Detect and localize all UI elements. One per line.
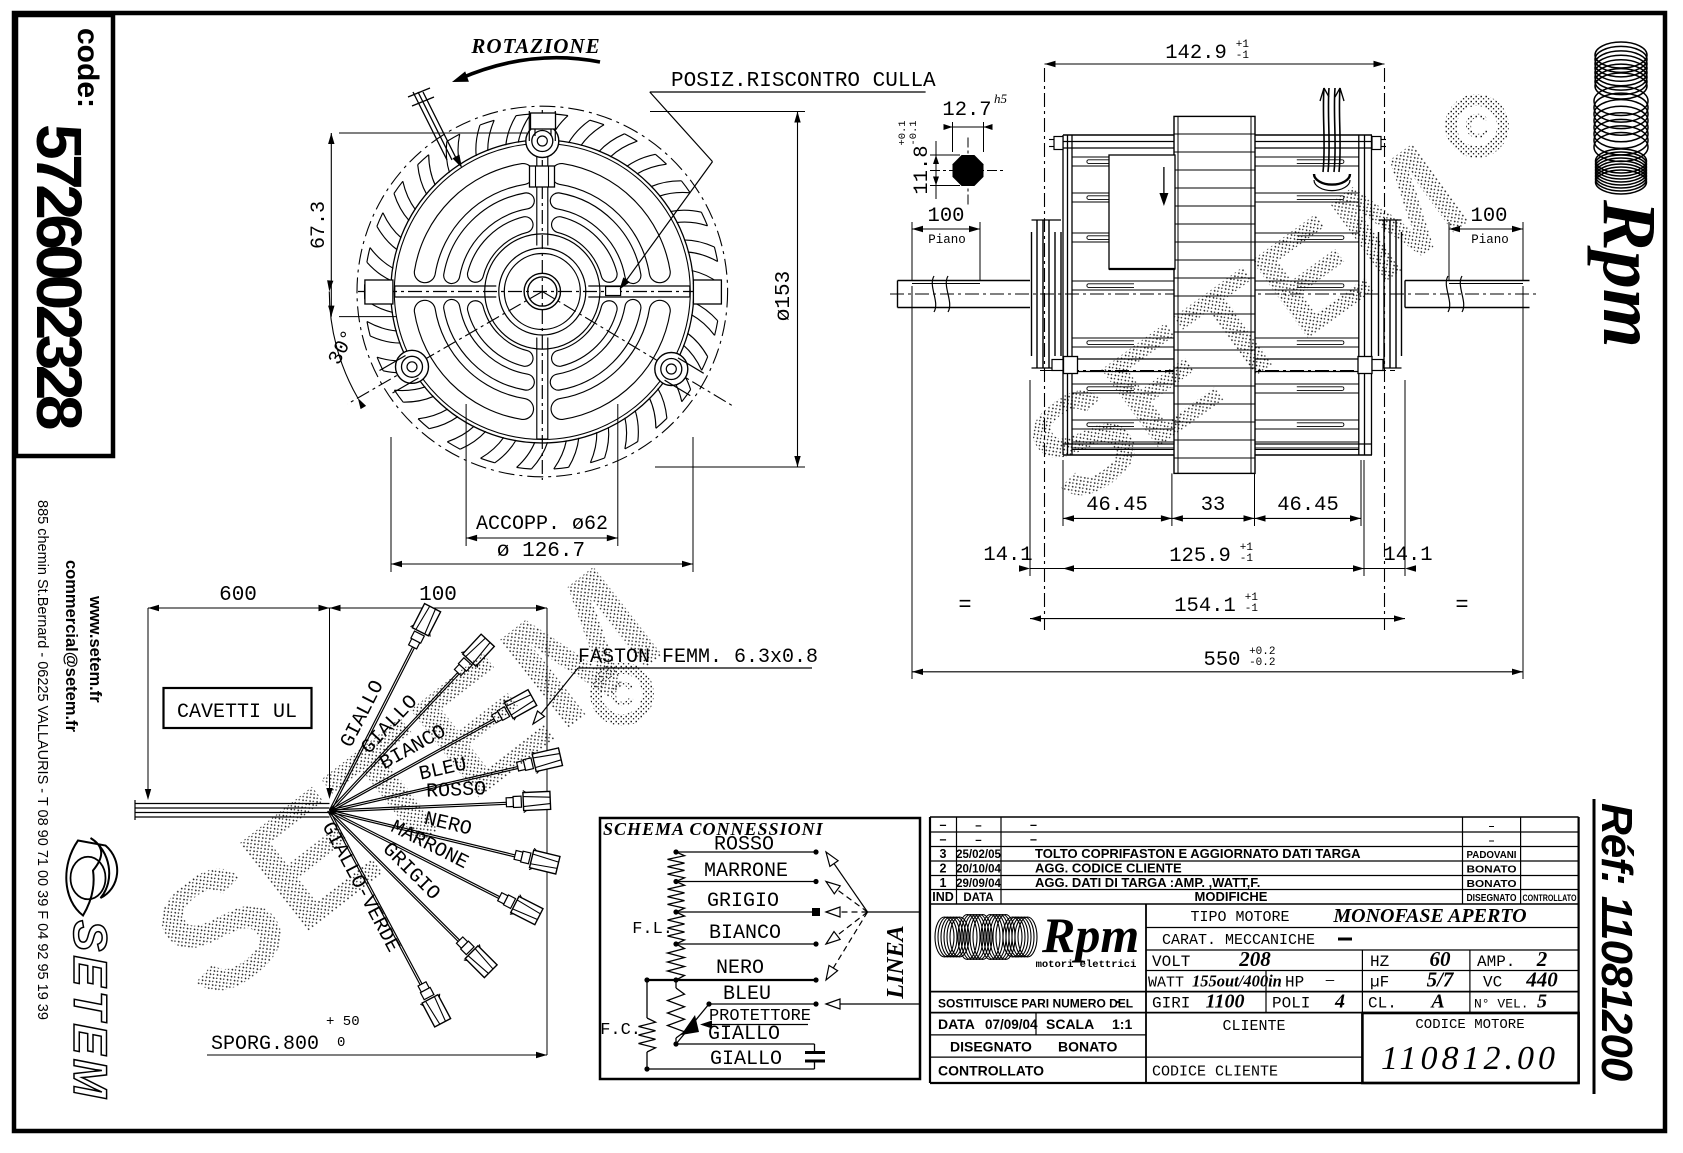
- svg-text:DATA: DATA: [938, 1016, 975, 1032]
- svg-text:POLI: POLI: [1272, 995, 1310, 1013]
- svg-text:142.9: 142.9: [1165, 42, 1227, 65]
- svg-text:GIRI: GIRI: [1152, 995, 1190, 1013]
- svg-text:-1: -1: [1236, 50, 1250, 62]
- svg-text:POSIZ.RISCONTRO CULLA: POSIZ.RISCONTRO CULLA: [671, 70, 936, 93]
- svg-text:WATT: WATT: [1148, 975, 1184, 992]
- svg-text:TOLTO COPRIFASTON E AGGIORNATO: TOLTO COPRIFASTON E AGGIORNATO DATI TARG…: [1035, 846, 1361, 861]
- svg-text:3: 3: [940, 847, 947, 861]
- svg-text:VC: VC: [1483, 974, 1502, 992]
- svg-text:code:: code:: [71, 28, 104, 108]
- svg-text:Piano: Piano: [928, 233, 966, 247]
- svg-text:–: –: [1030, 818, 1037, 832]
- svg-text:110812.00: 110812.00: [1381, 1040, 1559, 1077]
- svg-text:C: C: [610, 676, 634, 714]
- svg-text:-1: -1: [1245, 603, 1259, 615]
- svg-text:AMP.: AMP.: [1477, 953, 1515, 971]
- svg-text:-0.1: -0.1: [908, 120, 920, 145]
- svg-text:CODICE CLIENTE: CODICE CLIENTE: [1152, 1064, 1278, 1081]
- svg-text:HZ: HZ: [1370, 953, 1390, 971]
- svg-text:46.45: 46.45: [1277, 494, 1339, 517]
- svg-text:440: 440: [1525, 968, 1558, 992]
- svg-text:CONTROLLATO: CONTROLLATO: [938, 1063, 1044, 1079]
- svg-text:www.setem.fr: www.setem.fr: [86, 595, 104, 703]
- svg-text:Réf: 11081200: Réf: 11081200: [1592, 803, 1641, 1082]
- svg-text:CAVETTI UL: CAVETTI UL: [177, 701, 297, 724]
- svg-text:–: –: [940, 818, 947, 832]
- svg-text:GIALLO: GIALLO: [710, 1048, 782, 1071]
- svg-text:h5: h5: [994, 91, 1008, 106]
- svg-text:-: -: [1115, 993, 1120, 1010]
- svg-text:ACCOPP. ø62: ACCOPP. ø62: [476, 513, 608, 536]
- svg-text:Rpm: Rpm: [1041, 907, 1139, 963]
- svg-text:-1: -1: [1240, 553, 1254, 565]
- svg-text:14.1: 14.1: [1383, 544, 1432, 567]
- svg-text:1:1: 1:1: [1112, 1016, 1132, 1032]
- svg-text:Rpm: Rpm: [1587, 199, 1671, 348]
- svg-text:–: –: [975, 820, 982, 832]
- svg-text:BONATO: BONATO: [1058, 1039, 1117, 1055]
- svg-text:CLIENTE: CLIENTE: [1222, 1018, 1285, 1035]
- svg-text:GIALLO: GIALLO: [708, 1023, 780, 1046]
- svg-text:33: 33: [1201, 494, 1226, 517]
- svg-text:BONATO: BONATO: [1467, 865, 1517, 876]
- svg-text:5726002328: 5726002328: [23, 124, 95, 429]
- svg-text:DATA: DATA: [963, 892, 993, 904]
- svg-text:–: –: [1489, 836, 1495, 847]
- svg-text:-0.2: -0.2: [1249, 657, 1275, 669]
- svg-text:14.1: 14.1: [983, 544, 1032, 567]
- svg-text:550: 550: [1204, 649, 1241, 672]
- svg-text:µF: µF: [1370, 974, 1389, 992]
- svg-text:20/10/04: 20/10/04: [956, 864, 1001, 876]
- svg-text:A: A: [1429, 991, 1444, 1013]
- svg-text:AGG. CODICE CLIENTE: AGG. CODICE CLIENTE: [1035, 861, 1182, 876]
- svg-text:F.L.: F.L.: [632, 920, 673, 939]
- svg-text:DISEGNATO: DISEGNATO: [1467, 893, 1517, 904]
- svg-text:TIPO MOTORE: TIPO MOTORE: [1190, 909, 1289, 926]
- svg-text:600: 600: [219, 584, 257, 607]
- svg-text:ROSSO: ROSSO: [714, 834, 774, 857]
- svg-text:SETEM: SETEM: [64, 920, 117, 1102]
- svg-text:885 chemin St.Bernard - 0622: 885 chemin St.Bernard - 06225 VALLAURIS …: [34, 500, 50, 1020]
- svg-text:154.1: 154.1: [1174, 595, 1236, 618]
- svg-text:BONATO: BONATO: [1467, 879, 1517, 890]
- svg-text:PADOVANI: PADOVANI: [1467, 850, 1517, 861]
- svg-text:5: 5: [1537, 991, 1547, 1013]
- svg-text:100: 100: [928, 205, 965, 228]
- svg-text:VOLT: VOLT: [1152, 953, 1190, 971]
- svg-text:—: —: [1325, 973, 1335, 989]
- svg-text:NERO: NERO: [716, 957, 764, 980]
- svg-text:1: 1: [940, 876, 947, 890]
- svg-text:+ 50: + 50: [326, 1014, 360, 1030]
- svg-text:25/02/05: 25/02/05: [956, 849, 1001, 861]
- svg-text:commercial@setem.fr: commercial@setem.fr: [62, 560, 80, 733]
- svg-text:SPORG.800: SPORG.800: [211, 1033, 319, 1056]
- svg-text:SCALA: SCALA: [1046, 1016, 1094, 1032]
- svg-text:=: =: [958, 593, 971, 618]
- svg-text:CODICE MOTORE: CODICE MOTORE: [1415, 1017, 1524, 1033]
- svg-text:4: 4: [1334, 991, 1345, 1013]
- svg-text:AGG. DATI DI TARGA :AMP. ,WATT: AGG. DATI DI TARGA :AMP. ,WATT,F.: [1035, 875, 1260, 890]
- svg-text:N° VEL.: N° VEL.: [1474, 997, 1529, 1012]
- svg-text:208: 208: [1238, 947, 1271, 971]
- svg-text:5/7: 5/7: [1427, 968, 1455, 992]
- svg-text:MARRONE: MARRONE: [704, 860, 788, 883]
- svg-text:MODIFICHE: MODIFICHE: [1195, 889, 1268, 904]
- svg-text:0: 0: [337, 1035, 345, 1051]
- svg-text:HP: HP: [1285, 974, 1304, 992]
- svg-text:ROTAZIONE: ROTAZIONE: [470, 34, 600, 58]
- svg-text:=: =: [1455, 593, 1468, 618]
- svg-text:SOSTITUISCE PARI NUMERO DEL: SOSTITUISCE PARI NUMERO DEL: [938, 997, 1133, 1011]
- svg-text:CL.: CL.: [1368, 995, 1397, 1013]
- svg-text:07/09/04: 07/09/04: [985, 1017, 1038, 1032]
- svg-text:155out/400in: 155out/400in: [1192, 972, 1282, 991]
- svg-text:67.3: 67.3: [308, 201, 331, 249]
- svg-text:CONTROLLATO: CONTROLLATO: [1523, 893, 1577, 903]
- svg-text:ø153: ø153: [773, 271, 796, 321]
- svg-text:–: –: [1030, 833, 1037, 847]
- svg-text:BLEU: BLEU: [723, 983, 771, 1006]
- svg-text:1100: 1100: [1206, 991, 1245, 1013]
- svg-text:–: –: [940, 833, 947, 847]
- svg-text:29/09/04: 29/09/04: [956, 878, 1001, 890]
- svg-text:DISEGNATO: DISEGNATO: [950, 1039, 1032, 1055]
- svg-text:motori elettrici: motori elettrici: [1036, 959, 1137, 971]
- svg-text:F.C.: F.C.: [600, 1021, 641, 1040]
- svg-text:C: C: [1465, 108, 1489, 146]
- svg-text:MONOFASE APERTO: MONOFASE APERTO: [1332, 905, 1526, 927]
- svg-text:BIANCO: BIANCO: [709, 922, 781, 945]
- svg-text:2: 2: [940, 862, 947, 876]
- svg-text:IND: IND: [932, 890, 954, 904]
- svg-text:11.8: 11.8: [911, 145, 934, 194]
- svg-text:–: –: [1489, 821, 1495, 832]
- svg-text:GRIGIO: GRIGIO: [707, 890, 779, 913]
- svg-text:125.9: 125.9: [1169, 545, 1231, 568]
- svg-text:–: –: [975, 835, 982, 847]
- svg-text:12.7: 12.7: [942, 99, 991, 122]
- svg-text:LINEA: LINEA: [883, 925, 909, 999]
